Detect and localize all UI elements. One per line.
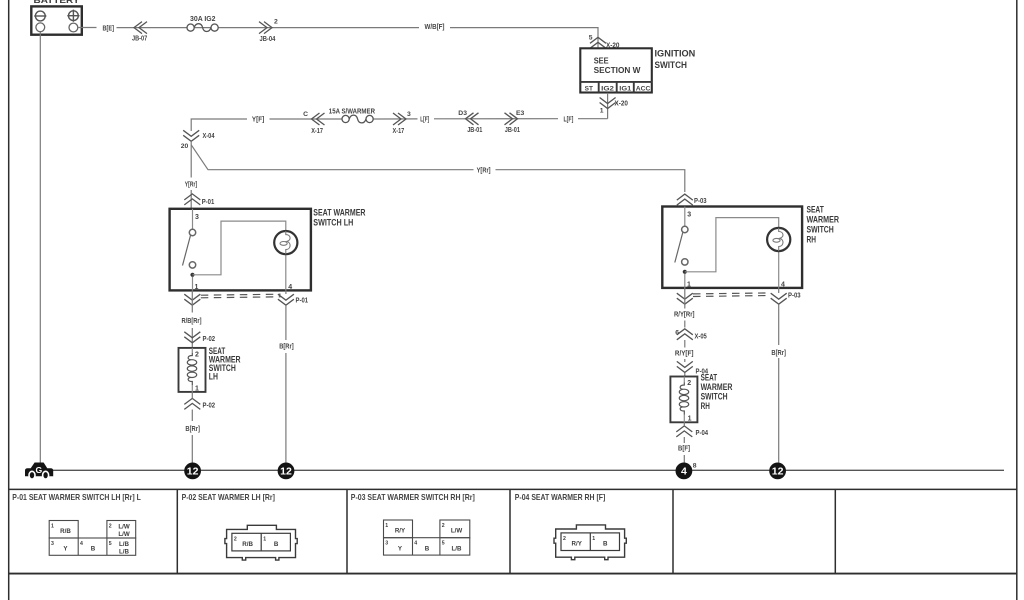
svg-text:2: 2	[563, 536, 566, 542]
svg-text:4: 4	[414, 541, 417, 547]
svg-text:L/B: L/B	[452, 545, 462, 552]
svg-text:L[F]: L[F]	[420, 115, 429, 124]
svg-text:4: 4	[681, 466, 687, 478]
svg-text:2: 2	[234, 536, 237, 542]
svg-text:P-03: P-03	[788, 291, 801, 300]
svg-text:L/W: L/W	[118, 524, 129, 531]
svg-text:BATTERY: BATTERY	[34, 0, 80, 5]
svg-text:P-02: P-02	[203, 401, 216, 410]
svg-text:JB-07: JB-07	[132, 33, 147, 42]
svg-text:P-01: P-01	[202, 197, 215, 206]
svg-text:X-04: X-04	[203, 131, 216, 140]
svg-text:12: 12	[772, 466, 784, 478]
svg-text:B[E]: B[E]	[103, 23, 115, 32]
svg-text:B: B	[91, 546, 96, 553]
svg-text:C: C	[303, 111, 308, 118]
svg-text:Y[Rr]: Y[Rr]	[185, 180, 198, 189]
svg-text:2: 2	[442, 523, 445, 529]
svg-text:3: 3	[195, 214, 199, 221]
svg-text:B: B	[425, 545, 430, 552]
svg-text:IG1: IG1	[619, 85, 632, 92]
svg-text:R/Y[Rr]: R/Y[Rr]	[674, 310, 695, 319]
svg-text:12: 12	[280, 466, 292, 478]
svg-text:B[F]: B[F]	[678, 444, 690, 453]
svg-text:2: 2	[687, 380, 691, 387]
svg-text:L/W: L/W	[451, 528, 462, 535]
svg-text:P-04: P-04	[696, 428, 709, 437]
svg-text:ST: ST	[585, 85, 593, 92]
svg-text:2: 2	[109, 524, 112, 530]
svg-text:LH: LH	[209, 371, 218, 382]
svg-text:1: 1	[195, 386, 199, 393]
svg-text:Y[Rr]: Y[Rr]	[477, 165, 491, 174]
svg-text:B[Rr]: B[Rr]	[771, 348, 786, 357]
svg-text:1: 1	[688, 416, 692, 423]
svg-text:L[F]: L[F]	[564, 115, 574, 124]
svg-text:4: 4	[288, 284, 292, 291]
svg-text:JB-01: JB-01	[467, 125, 482, 134]
svg-text:4: 4	[80, 541, 83, 547]
svg-text:1: 1	[195, 284, 199, 291]
svg-text:D3: D3	[458, 110, 467, 117]
svg-text:W/B[F]: W/B[F]	[425, 22, 445, 31]
svg-text:3: 3	[51, 541, 54, 547]
svg-text:5: 5	[109, 541, 112, 547]
svg-text:15A S/WARMER: 15A S/WARMER	[329, 107, 376, 116]
svg-text:X-17: X-17	[393, 126, 405, 135]
svg-text:B: B	[274, 541, 279, 548]
svg-text:B: B	[603, 541, 608, 548]
svg-text:G: G	[35, 465, 42, 475]
svg-text:JB-01: JB-01	[505, 125, 520, 134]
svg-text:P-01 SEAT WARMER SWITCH LH [Rr: P-01 SEAT WARMER SWITCH LH [Rr] L	[12, 493, 141, 502]
svg-text:IG2: IG2	[601, 85, 614, 92]
svg-text:P-04 SEAT WARMER RH [F]: P-04 SEAT WARMER RH [F]	[515, 493, 606, 502]
svg-text:R/Y[F]: R/Y[F]	[675, 349, 694, 358]
svg-text:E3: E3	[516, 110, 525, 117]
svg-text:1: 1	[592, 536, 595, 542]
svg-text:RH: RH	[807, 235, 817, 246]
svg-text:RH: RH	[701, 401, 710, 412]
svg-text:B[Rr]: B[Rr]	[279, 342, 294, 351]
svg-text:R/Y: R/Y	[395, 528, 406, 535]
svg-text:1: 1	[51, 524, 54, 530]
svg-text:X-20: X-20	[615, 98, 629, 107]
svg-text:5: 5	[589, 35, 593, 42]
svg-text:P-03 SEAT WARMER SWITCH RH [Rr: P-03 SEAT WARMER SWITCH RH [Rr]	[351, 493, 475, 502]
svg-text:12: 12	[187, 466, 199, 478]
svg-text:R/B: R/B	[242, 541, 253, 548]
svg-text:3: 3	[385, 541, 388, 547]
svg-text:1: 1	[263, 536, 266, 542]
svg-text:P-02 SEAT WARMER LH [Rr]: P-02 SEAT WARMER LH [Rr]	[182, 493, 276, 502]
svg-text:1: 1	[687, 281, 691, 288]
svg-text:8: 8	[693, 462, 697, 469]
svg-text:SWITCH LH: SWITCH LH	[313, 218, 353, 229]
svg-text:4: 4	[781, 281, 785, 288]
svg-text:R/B[Rr]: R/B[Rr]	[182, 316, 202, 325]
svg-text:L/B: L/B	[119, 549, 129, 556]
svg-text:R/B: R/B	[60, 528, 71, 535]
svg-text:SEE: SEE	[594, 56, 609, 65]
svg-text:30A IG2: 30A IG2	[190, 14, 216, 23]
svg-text:SECTION W: SECTION W	[594, 66, 641, 75]
svg-text:X-17: X-17	[311, 126, 323, 135]
svg-text:20: 20	[181, 143, 189, 150]
svg-text:6: 6	[675, 329, 679, 336]
svg-text:P-01: P-01	[296, 295, 309, 304]
svg-text:L/B: L/B	[119, 541, 129, 548]
svg-text:1: 1	[600, 107, 604, 114]
svg-text:P-02: P-02	[203, 334, 216, 343]
svg-text:2: 2	[274, 18, 278, 25]
svg-text:IGNITION: IGNITION	[655, 49, 696, 60]
svg-text:P-03: P-03	[694, 196, 707, 205]
svg-text:5: 5	[442, 541, 445, 547]
svg-text:3: 3	[687, 212, 691, 219]
svg-text:B[Rr]: B[Rr]	[185, 424, 200, 433]
svg-text:2: 2	[195, 352, 199, 359]
svg-text:Y[F]: Y[F]	[252, 115, 265, 124]
svg-text:JB-04: JB-04	[260, 34, 276, 43]
svg-text:1: 1	[385, 523, 388, 529]
svg-text:X-05: X-05	[695, 332, 707, 341]
svg-text:L/W: L/W	[118, 531, 129, 538]
svg-text:ACC: ACC	[636, 85, 651, 92]
svg-text:SWITCH: SWITCH	[655, 60, 688, 71]
svg-text:3: 3	[407, 111, 411, 118]
svg-text:R/Y: R/Y	[572, 541, 583, 548]
